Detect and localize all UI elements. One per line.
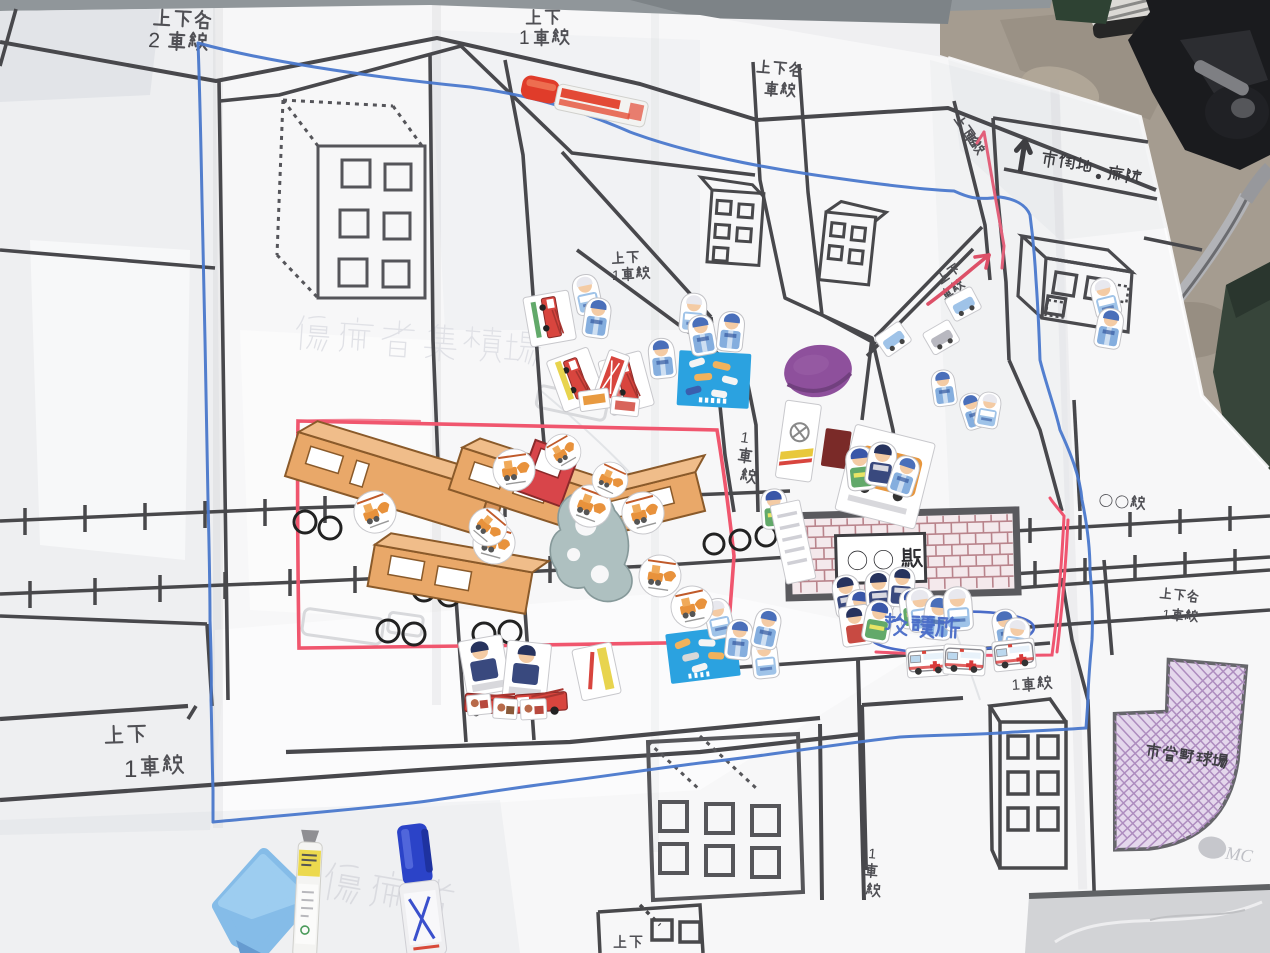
svg-text:1: 1 [868,845,877,862]
svg-text:MC: MC [1223,842,1254,866]
svg-text:1: 1 [124,756,137,783]
svg-text:2: 2 [148,29,161,53]
svg-text:1: 1 [1011,676,1021,694]
svg-text:1: 1 [519,28,530,49]
svg-text:1: 1 [612,267,620,283]
